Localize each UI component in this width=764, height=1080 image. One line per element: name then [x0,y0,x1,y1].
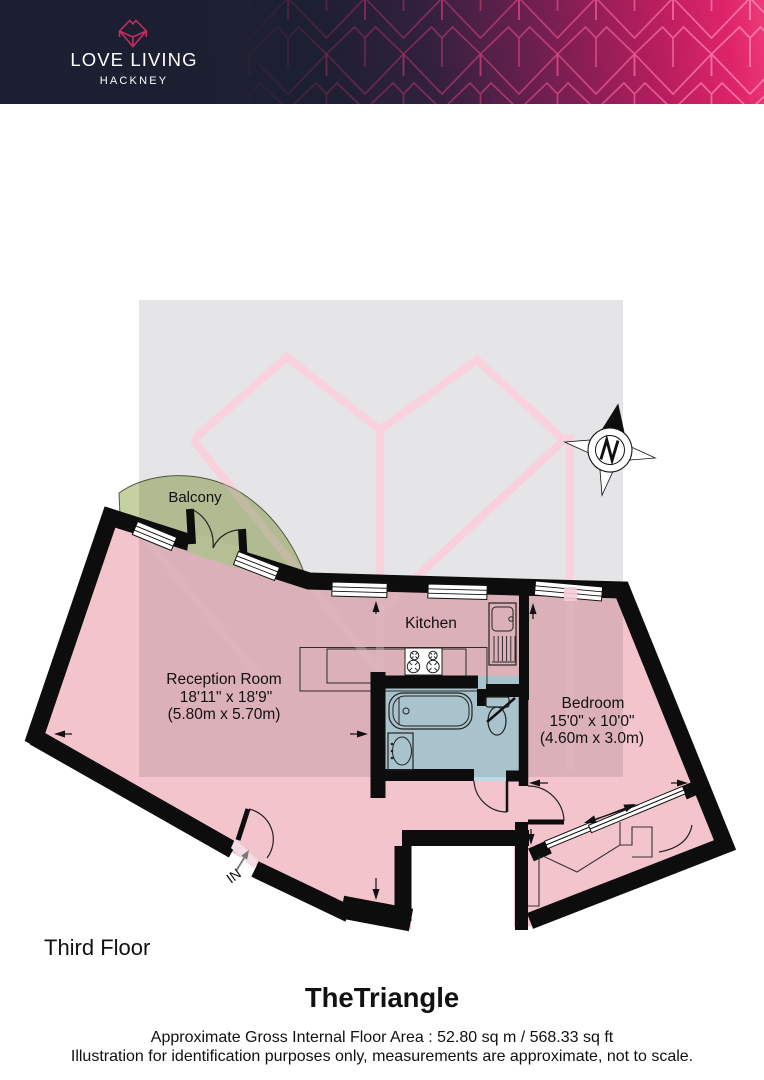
svg-text:15'0" x 10'0": 15'0" x 10'0" [549,713,634,730]
svg-text:Third Floor: Third Floor [44,935,150,960]
svg-text:IN: IN [223,865,244,886]
svg-text:HACKNEY: HACKNEY [100,75,169,87]
svg-text:TheTriangle: TheTriangle [305,982,459,1013]
svg-text:18'11" x 18'9": 18'11" x 18'9" [180,689,272,706]
svg-text:LOVE LIVING: LOVE LIVING [70,49,197,70]
svg-text:Balcony: Balcony [168,489,222,506]
svg-text:(5.80m x 5.70m): (5.80m x 5.70m) [168,706,281,723]
svg-text:Illustration for identificatio: Illustration for identification purposes… [71,1048,693,1065]
svg-text:Reception Room: Reception Room [166,671,281,688]
svg-text:(4.60m x 3.0m): (4.60m x 3.0m) [540,730,644,747]
svg-text:Approximate Gross Internal Flo: Approximate Gross Internal Floor Area : … [151,1029,614,1046]
svg-text:Kitchen: Kitchen [405,615,457,632]
svg-text:Bedroom: Bedroom [562,695,625,712]
